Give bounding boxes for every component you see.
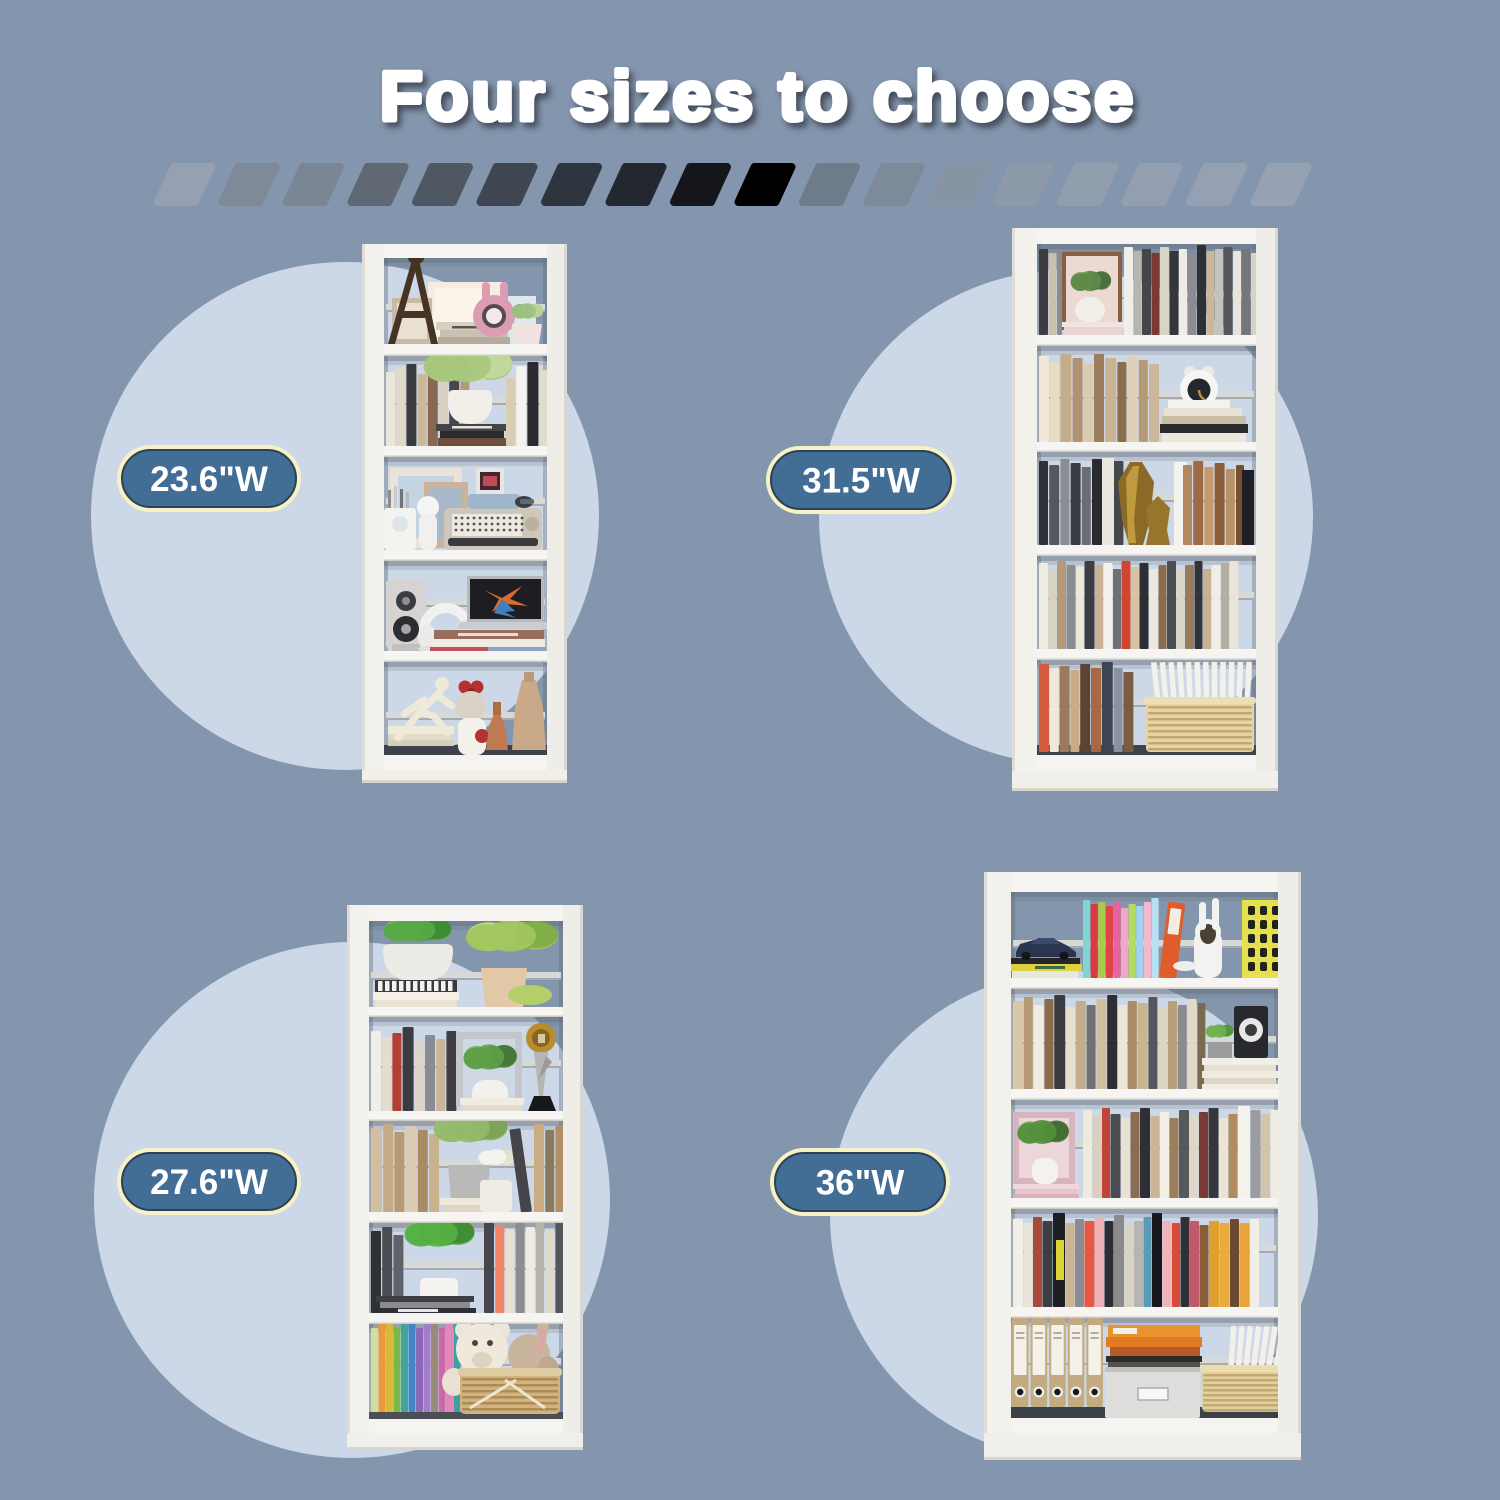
svg-text:Four sizes to choose: Four sizes to choose: [380, 57, 1136, 135]
svg-text:36"W: 36"W: [816, 1164, 905, 1203]
svg-text:23.6"W: 23.6"W: [150, 460, 268, 499]
svg-text:27.6"W: 27.6"W: [150, 1163, 268, 1202]
svg-text:31.5"W: 31.5"W: [802, 462, 920, 501]
